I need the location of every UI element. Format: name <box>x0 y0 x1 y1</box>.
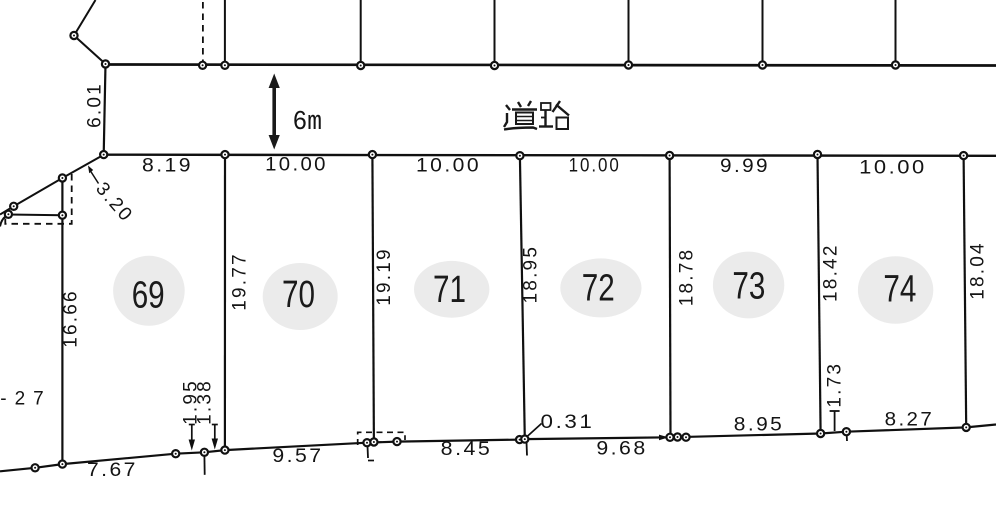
svg-text:0.31: 0.31 <box>541 412 595 433</box>
svg-text:-27: -27 <box>0 389 51 410</box>
svg-text:19.19: 19.19 <box>374 247 395 306</box>
svg-text:18.95: 18.95 <box>520 245 541 304</box>
svg-text:18.78: 18.78 <box>676 248 697 307</box>
svg-text:18.42: 18.42 <box>821 243 842 302</box>
svg-text:69: 69 <box>132 275 165 317</box>
svg-text:18.04: 18.04 <box>967 241 988 300</box>
svg-text:10.00: 10.00 <box>569 155 621 176</box>
svg-text:10.00: 10.00 <box>416 155 481 176</box>
svg-text:6m: 6m <box>293 108 323 138</box>
svg-text:8.19: 8.19 <box>142 156 193 177</box>
svg-text:7.67: 7.67 <box>87 460 138 481</box>
svg-text:1.38: 1.38 <box>195 379 216 425</box>
svg-text:6.01: 6.01 <box>84 82 105 128</box>
svg-text:71: 71 <box>433 269 466 311</box>
svg-text:16.66: 16.66 <box>60 289 81 348</box>
svg-text:1.73: 1.73 <box>825 362 846 408</box>
svg-text:8.95: 8.95 <box>734 415 784 436</box>
svg-text:19.77: 19.77 <box>229 252 250 311</box>
svg-text:73: 73 <box>732 266 765 308</box>
svg-text:8.45: 8.45 <box>441 439 493 460</box>
svg-text:10.00: 10.00 <box>265 155 328 176</box>
svg-text:72: 72 <box>582 268 615 310</box>
svg-text:9.57: 9.57 <box>272 446 323 467</box>
svg-text:8.27: 8.27 <box>885 410 935 431</box>
svg-text:10.00: 10.00 <box>859 158 927 179</box>
svg-text:9.68: 9.68 <box>596 439 647 460</box>
svg-text:74: 74 <box>883 269 916 311</box>
svg-text:9.99: 9.99 <box>720 156 770 177</box>
svg-text:70: 70 <box>282 274 315 316</box>
